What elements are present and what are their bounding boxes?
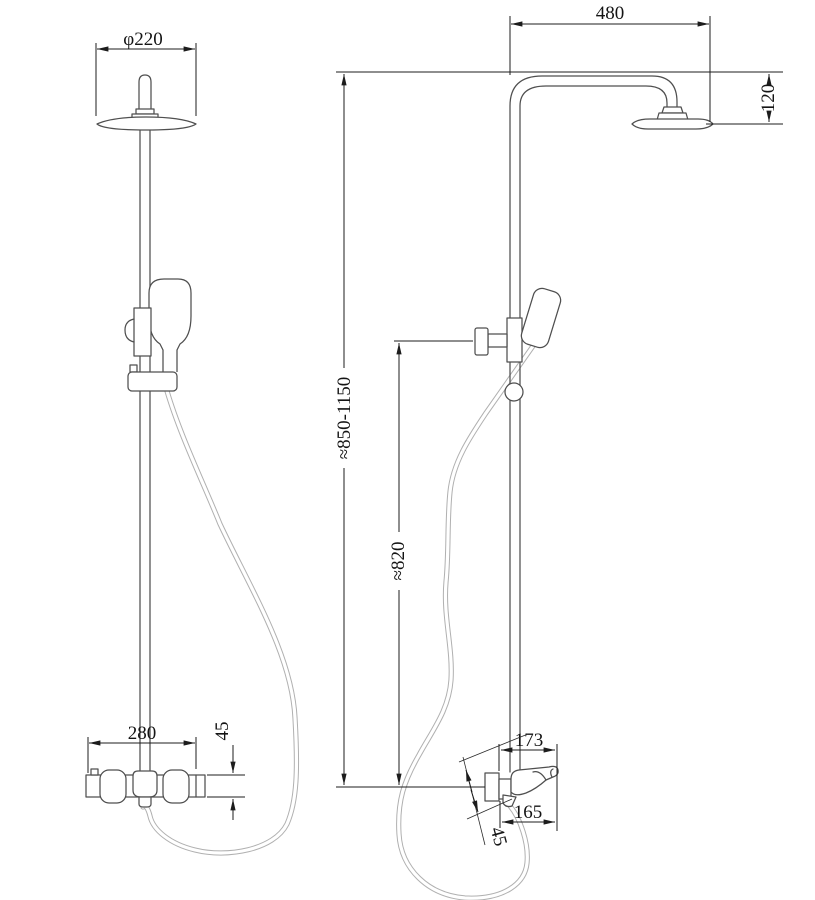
dim-overall-height-label: ≈850-1150 (334, 377, 355, 460)
hand-shower-paddle (149, 279, 191, 372)
dim-outlet-offset-label: 45 (486, 825, 511, 849)
head-collar-upper (662, 107, 683, 113)
slider-knob-front (125, 319, 134, 342)
mixer-valve-side (485, 766, 558, 806)
dim-valve-height: 45 (207, 722, 245, 821)
dim-arm-reach-label: 480 (596, 3, 625, 24)
dim-valve-height-label: 45 (212, 722, 233, 741)
overhead-shower-side (632, 119, 713, 129)
hand-shower-paddle-side (519, 286, 563, 350)
head-flange-upper (136, 109, 154, 114)
riser-rail (140, 130, 150, 772)
slider-block-side (507, 318, 522, 362)
dim-valve-reach-bottom-label: 165 (514, 802, 543, 823)
holder-ring-side (505, 383, 523, 401)
technical-drawing-page: φ220 280 45 (0, 0, 815, 900)
slider-block (134, 308, 151, 356)
side-view: 480 120 ≈850-1150 ≈820 (334, 3, 783, 898)
dim-overall-height: ≈850-1150 (334, 74, 355, 785)
head-disc (97, 117, 196, 130)
valve-top-tab (91, 769, 98, 775)
slider-knob-stem (488, 334, 507, 347)
hand-shower-side (475, 286, 563, 401)
dim-hand-shower-height: ≈820 (388, 341, 473, 785)
front-view: φ220 280 45 (86, 29, 296, 853)
dim-valve-width-label: 280 (128, 723, 157, 744)
holder-bracket (128, 372, 177, 391)
valve-knob-right (163, 770, 189, 803)
dim-valve-width: 280 (88, 723, 196, 773)
hand-shower-front (125, 279, 191, 391)
dim-head-drop: 120 (706, 74, 783, 124)
dim-head-drop-label: 120 (758, 84, 779, 113)
dim-hand-shower-height-label: ≈820 (388, 542, 409, 581)
dim-head-diameter-label: φ220 (123, 29, 162, 50)
valve-knob-left (100, 770, 126, 803)
slider-knob-head (475, 328, 488, 355)
head-stem (139, 75, 151, 109)
riser-and-arm-side (510, 76, 713, 772)
overhead-shower-front (97, 75, 196, 130)
dim-arm-reach: 480 (510, 3, 710, 122)
shower-system-drawing: φ220 280 45 (0, 0, 815, 900)
dim-valve-reach-top-label: 173 (515, 730, 544, 751)
valve-hose-outlet (139, 797, 151, 807)
dim-head-diameter: φ220 (96, 29, 196, 116)
valve-center-connector (133, 771, 157, 797)
wall-flange (485, 773, 499, 801)
mixer-valve-front (86, 769, 205, 807)
holder-bracket-nub (130, 365, 137, 372)
